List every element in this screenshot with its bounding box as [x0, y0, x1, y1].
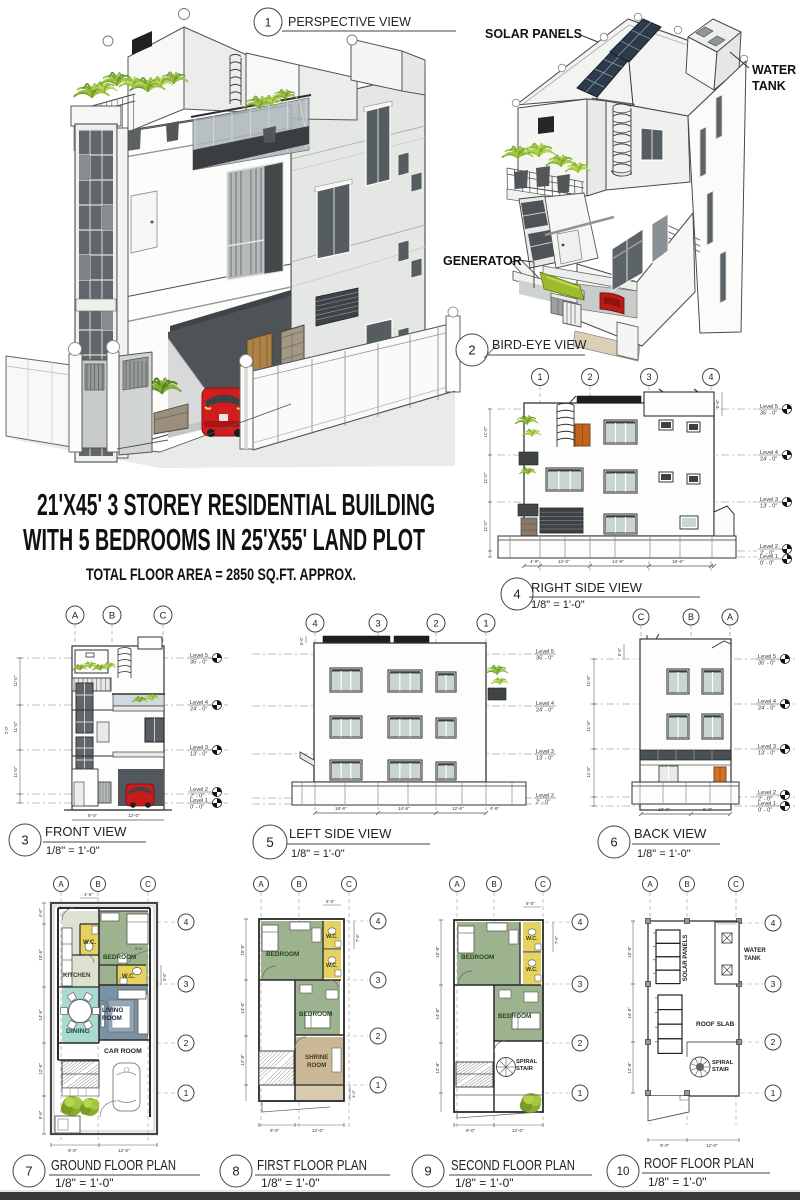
svg-text:9'-0": 9'-0"	[270, 1128, 280, 1133]
svg-text:WITH 5 BEDROOMS IN 25'X55' LAN: WITH 5 BEDROOMS IN 25'X55' LAND PLOT	[23, 522, 425, 557]
svg-text:11'-0": 11'-0"	[483, 472, 488, 483]
svg-text:A: A	[58, 880, 64, 889]
svg-text:24' - 0": 24' - 0"	[190, 707, 207, 713]
svg-text:A: A	[258, 880, 264, 889]
svg-text:4: 4	[578, 917, 583, 927]
svg-text:7: 7	[25, 1164, 32, 1179]
svg-text:1: 1	[483, 618, 488, 629]
svg-text:BEDROOM: BEDROOM	[498, 1013, 531, 1020]
svg-text:BACK VIEW: BACK VIEW	[634, 826, 707, 841]
svg-text:0' - 0": 0' - 0"	[758, 808, 772, 814]
svg-text:FRONT VIEW: FRONT VIEW	[45, 824, 127, 839]
svg-text:2: 2	[771, 1037, 776, 1047]
svg-text:12'-0": 12'-0"	[118, 1148, 130, 1153]
svg-text:1/8" = 1'-0": 1/8" = 1'-0"	[46, 845, 100, 857]
svg-text:12'-0": 12'-0"	[558, 559, 570, 564]
svg-text:ROOF FLOOR PLAN: ROOF FLOOR PLAN	[644, 1156, 754, 1172]
svg-text:4: 4	[513, 587, 520, 602]
svg-text:4: 4	[771, 918, 776, 928]
svg-text:B: B	[491, 880, 496, 889]
svg-text:13' - 0": 13' - 0"	[758, 751, 775, 757]
svg-text:W.C.: W.C.	[526, 967, 538, 973]
svg-text:1: 1	[376, 1080, 381, 1090]
svg-text:9'-0": 9'-0"	[68, 1148, 78, 1153]
svg-text:14'-8": 14'-8"	[627, 1007, 632, 1019]
svg-text:15'-6": 15'-6"	[38, 949, 43, 961]
svg-text:24' - 0": 24' - 0"	[758, 706, 775, 712]
svg-text:12'-8": 12'-8"	[435, 1062, 440, 1074]
svg-text:W.C.: W.C.	[83, 940, 96, 946]
svg-text:1/8" = 1'-0": 1/8" = 1'-0"	[55, 1176, 114, 1190]
svg-text:A: A	[727, 612, 733, 622]
svg-text:4: 4	[708, 372, 713, 382]
svg-text:1/8" = 1'-0": 1/8" = 1'-0"	[531, 599, 585, 611]
svg-text:12'-0": 12'-0"	[512, 1128, 524, 1133]
svg-text:1: 1	[537, 372, 542, 382]
svg-text:1: 1	[771, 1088, 776, 1098]
svg-text:PERSPECTIVE VIEW: PERSPECTIVE VIEW	[288, 15, 411, 29]
svg-text:7'-6": 7'-6"	[554, 935, 559, 944]
svg-text:1: 1	[265, 15, 272, 29]
svg-text:C: C	[733, 880, 739, 889]
svg-text:ROOM: ROOM	[102, 1015, 122, 1022]
svg-text:WATER: WATER	[744, 947, 766, 954]
svg-text:GENERATOR: GENERATOR	[443, 254, 522, 268]
svg-text:14'-6": 14'-6"	[38, 1009, 43, 1021]
svg-text:B: B	[688, 612, 694, 622]
svg-text:16'-6": 16'-6"	[335, 806, 347, 811]
svg-text:9'-0": 9'-0"	[660, 1143, 670, 1148]
svg-text:1/8" = 1'-0": 1/8" = 1'-0"	[261, 1176, 320, 1190]
svg-text:C: C	[160, 610, 167, 621]
svg-text:SHRINE: SHRINE	[305, 1054, 328, 1061]
svg-text:B: B	[109, 610, 115, 621]
svg-text:12'-0": 12'-0"	[706, 1143, 718, 1148]
svg-text:A: A	[454, 880, 460, 889]
svg-text:0' - 0": 0' - 0"	[190, 805, 204, 811]
svg-text:KITCHEN: KITCHEN	[63, 972, 91, 979]
svg-text:11'-8": 11'-8"	[586, 766, 591, 777]
svg-text:B: B	[684, 880, 689, 889]
svg-text:BEDROOM: BEDROOM	[461, 954, 494, 961]
svg-text:11'-8": 11'-8"	[586, 675, 591, 686]
svg-text:TANK: TANK	[752, 79, 786, 93]
svg-text:BIRD-EYE VIEW: BIRD-EYE VIEW	[492, 338, 587, 352]
svg-text:C: C	[638, 612, 645, 622]
svg-text:11'-0": 11'-0"	[483, 426, 488, 437]
svg-text:C: C	[346, 880, 352, 889]
svg-text:4: 4	[312, 618, 317, 629]
svg-text:12'-0": 12'-0"	[312, 1128, 324, 1133]
svg-text:RIGHT SIDE VIEW: RIGHT SIDE VIEW	[531, 580, 643, 595]
svg-text:W.C.: W.C.	[526, 936, 538, 942]
svg-text:12'-0": 12'-0"	[128, 813, 140, 818]
svg-text:6'-0": 6'-0"	[326, 899, 335, 904]
svg-text:W.C.: W.C.	[326, 934, 338, 940]
svg-text:9'-0": 9'-0"	[703, 807, 713, 812]
svg-text:12'-8": 12'-8"	[240, 1054, 245, 1066]
svg-text:5'-6": 5'-6"	[715, 399, 720, 408]
svg-text:3: 3	[376, 975, 381, 985]
svg-text:35' - 0": 35' - 0"	[758, 661, 775, 667]
svg-text:WATER: WATER	[752, 63, 796, 77]
svg-text:4: 4	[376, 916, 381, 926]
svg-text:15'-8": 15'-8"	[435, 946, 440, 958]
svg-text:12'-6": 12'-6"	[38, 1063, 43, 1075]
svg-text:12'-8": 12'-8"	[627, 1062, 632, 1074]
svg-text:2: 2	[184, 1038, 189, 1048]
svg-text:GROUND FLOOR PLAN: GROUND FLOOR PLAN	[51, 1158, 176, 1174]
svg-text:16'-6": 16'-6"	[672, 559, 684, 564]
svg-text:8'-0": 8'-0"	[88, 813, 98, 818]
svg-text:9'-6": 9'-6"	[38, 1110, 43, 1119]
svg-text:BEDROOM: BEDROOM	[299, 1011, 332, 1018]
svg-text:3: 3	[184, 979, 189, 989]
svg-text:5'-6": 5'-6"	[617, 647, 622, 656]
svg-text:3: 3	[578, 979, 583, 989]
svg-text:4: 4	[184, 917, 189, 927]
svg-text:BEDROOM: BEDROOM	[103, 954, 136, 961]
svg-text:2' - 0": 2' - 0"	[536, 800, 550, 806]
svg-text:13' - 0": 13' - 0"	[190, 752, 207, 758]
svg-text:LEFT SIDE VIEW: LEFT SIDE VIEW	[289, 826, 392, 841]
svg-text:SPIRAL: SPIRAL	[712, 1060, 734, 1066]
svg-text:STAIR: STAIR	[712, 1067, 730, 1073]
svg-text:35' - 0": 35' - 0"	[760, 411, 777, 417]
svg-text:14'-8": 14'-8"	[435, 1008, 440, 1020]
svg-text:CAR ROOM: CAR ROOM	[104, 1048, 142, 1055]
svg-text:9'-0": 9'-0"	[466, 1128, 476, 1133]
svg-text:4'-6": 4'-6"	[351, 1089, 356, 1098]
svg-text:1/8" = 1'-0": 1/8" = 1'-0"	[291, 848, 345, 860]
svg-text:A: A	[647, 880, 653, 889]
svg-text:24' - 0": 24' - 0"	[760, 457, 777, 463]
svg-text:5'-0": 5'-0"	[135, 946, 144, 951]
svg-text:8: 8	[232, 1164, 239, 1179]
svg-text:LIVING: LIVING	[102, 1007, 123, 1014]
svg-text:15'-8": 15'-8"	[627, 946, 632, 958]
svg-text:3: 3	[375, 618, 380, 629]
svg-text:14'-6": 14'-6"	[398, 806, 410, 811]
svg-text:BEDROOM: BEDROOM	[266, 951, 299, 958]
svg-text:4'-9": 4'-9"	[530, 559, 540, 564]
svg-text:1: 1	[184, 1088, 189, 1098]
svg-text:B: B	[95, 880, 100, 889]
svg-text:1/8" = 1'-0": 1/8" = 1'-0"	[455, 1176, 514, 1190]
svg-text:4'-6": 4'-6"	[84, 892, 93, 897]
svg-text:W.C.: W.C.	[326, 963, 338, 969]
svg-text:2: 2	[433, 618, 438, 629]
svg-text:2: 2	[376, 1031, 381, 1041]
svg-text:3: 3	[771, 979, 776, 989]
svg-text:SOLAR PANELS: SOLAR PANELS	[683, 935, 689, 982]
svg-text:10: 10	[617, 1166, 630, 1178]
svg-text:1/8" = 1'-0": 1/8" = 1'-0"	[648, 1175, 707, 1189]
svg-text:3: 3	[646, 372, 651, 382]
svg-text:11'-8": 11'-8"	[586, 720, 591, 731]
svg-text:A: A	[72, 610, 79, 621]
svg-text:4'-6": 4'-6"	[38, 908, 43, 917]
svg-text:5'-6": 5'-6"	[299, 636, 304, 645]
svg-text:11'-0": 11'-0"	[483, 520, 488, 531]
svg-text:12'-6": 12'-6"	[452, 806, 464, 811]
svg-text:3'-6": 3'-6"	[162, 972, 167, 981]
svg-text:14'-8": 14'-8"	[240, 1002, 245, 1014]
svg-text:7'-6": 7'-6"	[355, 933, 360, 942]
svg-text:14'-9": 14'-9"	[612, 559, 624, 564]
svg-text:STAIR: STAIR	[516, 1066, 534, 1072]
svg-text:35' - 0": 35' - 0"	[190, 660, 207, 666]
svg-text:6: 6	[610, 835, 617, 850]
svg-text:11'-0": 11'-0"	[13, 675, 18, 686]
svg-text:TANK: TANK	[744, 955, 761, 962]
svg-text:C: C	[145, 880, 151, 889]
svg-text:4'-6": 4'-6"	[490, 806, 500, 811]
svg-text:12'-0": 12'-0"	[658, 807, 670, 812]
svg-text:DINING: DINING	[66, 1028, 90, 1035]
svg-text:5: 5	[266, 835, 274, 850]
svg-text:B: B	[296, 880, 301, 889]
svg-text:15'-8": 15'-8"	[240, 944, 245, 956]
svg-text:13' - 0": 13' - 0"	[536, 756, 553, 762]
svg-text:6'-0": 6'-0"	[526, 901, 535, 906]
svg-text:ROOM: ROOM	[307, 1062, 326, 1069]
svg-text:W.C.: W.C.	[122, 974, 135, 980]
svg-text:21'X45' 3 STOREY RESIDENTIAL B: 21'X45' 3 STOREY RESIDENTIAL BUILDING	[37, 487, 435, 522]
svg-text:TOTAL FLOOR AREA = 2850 SQ.FT.: TOTAL FLOOR AREA = 2850 SQ.FT. APPROX.	[86, 566, 356, 584]
svg-text:35' - 0": 35' - 0"	[536, 656, 553, 662]
svg-text:24' - 0": 24' - 0"	[536, 708, 553, 714]
svg-text:9: 9	[424, 1164, 431, 1179]
svg-text:1/8" = 1'-0": 1/8" = 1'-0"	[637, 848, 691, 860]
svg-text:0' - 0": 0' - 0"	[760, 561, 774, 567]
svg-text:2'-0": 2'-0"	[4, 725, 9, 734]
svg-text:C: C	[540, 880, 546, 889]
svg-text:2: 2	[578, 1038, 583, 1048]
svg-text:2: 2	[468, 343, 475, 358]
svg-text:SECOND FLOOR PLAN: SECOND FLOOR PLAN	[451, 1158, 575, 1174]
svg-text:3: 3	[21, 833, 28, 848]
svg-text:11'-0": 11'-0"	[13, 721, 18, 732]
svg-text:ROOF SLAB: ROOF SLAB	[696, 1021, 735, 1028]
svg-text:11'-0": 11'-0"	[13, 766, 18, 777]
svg-text:SOLAR PANELS: SOLAR PANELS	[485, 27, 582, 41]
svg-text:SPIRAL: SPIRAL	[516, 1059, 538, 1065]
svg-text:2: 2	[587, 372, 592, 382]
svg-text:1: 1	[578, 1088, 583, 1098]
svg-text:FIRST FLOOR PLAN: FIRST FLOOR PLAN	[257, 1158, 367, 1174]
svg-text:13' - 0": 13' - 0"	[760, 504, 777, 510]
